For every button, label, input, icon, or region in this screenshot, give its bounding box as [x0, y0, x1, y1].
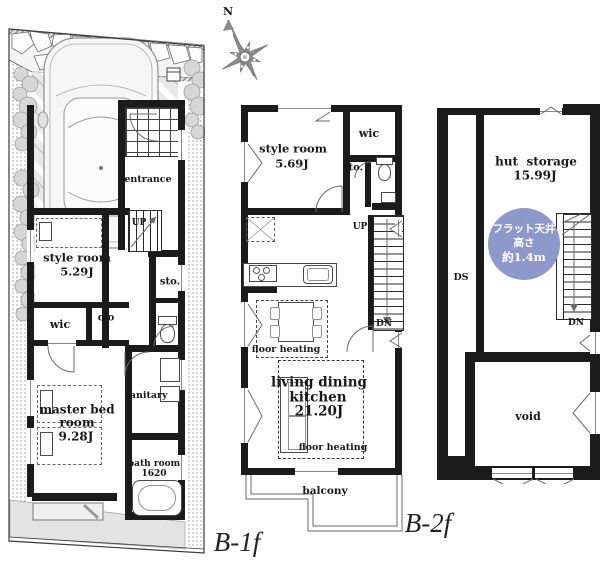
badge-line: 約1.4m [502, 250, 546, 265]
wall [437, 108, 448, 473]
sanitary-label: sanitary [124, 391, 167, 401]
room-area: 15.99J [513, 169, 556, 182]
compass-icon [208, 2, 282, 88]
window [27, 380, 34, 416]
window [590, 392, 600, 434]
room-name: hut storage [495, 155, 577, 168]
dn-label: DN [376, 320, 392, 330]
floor-label-b1f: B-1f [214, 528, 261, 558]
plan-b2f: style room 5.69J wic sto. UP DN floor he… [233, 95, 413, 545]
room-name: living dining [271, 376, 367, 391]
room-area: 5.69J [275, 158, 308, 171]
room-size: 1620 [141, 470, 166, 480]
wall [32, 340, 129, 346]
closet-label: clo [98, 313, 115, 324]
wall [248, 208, 350, 215]
window [395, 332, 402, 348]
wall [149, 250, 156, 345]
floorplan-sheet: N [0, 0, 610, 568]
wall [32, 302, 129, 308]
wall [365, 162, 371, 207]
ds-label: DS [453, 273, 468, 283]
balcony-rail [246, 475, 402, 531]
window [241, 388, 248, 443]
bucket-icon [167, 68, 180, 81]
storage-label: sto. [160, 277, 180, 288]
burner [253, 267, 260, 274]
room-area: 21.20J [295, 405, 344, 420]
plan-loft: フラット天井 高さ 約1.4m hut storage 15.99J DS DN… [437, 104, 600, 484]
wall [125, 433, 185, 440]
burner [258, 274, 265, 281]
room-area: 9.28J [59, 430, 94, 443]
window [295, 468, 338, 475]
wall [125, 345, 185, 352]
entrance-label: entrance [124, 175, 171, 185]
wall [27, 208, 130, 215]
window [27, 230, 34, 262]
stair-handrail [556, 213, 564, 320]
wall [448, 456, 475, 466]
window [492, 468, 532, 478]
chair [312, 325, 322, 338]
window [241, 142, 248, 182]
wall [156, 298, 183, 303]
chair [270, 307, 280, 320]
room-name: style room [259, 143, 327, 156]
window [241, 302, 248, 347]
wall [465, 352, 590, 362]
storage-label: sto. [343, 163, 363, 174]
planting-strip-right [186, 98, 204, 548]
chair [312, 307, 322, 320]
pillow [39, 222, 52, 241]
room-area: 5.29J [60, 266, 93, 279]
window [535, 468, 573, 478]
room-name: style room [43, 252, 111, 265]
wall [372, 203, 402, 210]
plan-b1f: entrance UP style room 5.29J sto. wic cl… [8, 28, 205, 558]
stairs-up-1f [128, 210, 162, 252]
bathtub-icon [138, 485, 176, 511]
window [395, 220, 402, 237]
refrigerator-space [246, 217, 275, 242]
room-name: room [59, 416, 94, 429]
badge-line: 高さ [514, 237, 535, 251]
ceiling-height-badge: フラット天井 高さ 約1.4m [488, 208, 560, 280]
wall [118, 107, 125, 162]
void-label: void [515, 411, 541, 423]
pillow [40, 432, 53, 456]
window [590, 332, 600, 354]
chair [270, 325, 280, 338]
washer-icon [160, 358, 180, 382]
window [178, 130, 185, 160]
entrance-porch-tiles [125, 107, 180, 157]
floor-label-b2f: B-2f [405, 509, 452, 539]
floor-heating-label: floor heating [299, 443, 368, 453]
up-label: UP [132, 219, 147, 229]
toilet-icon [378, 164, 391, 181]
wall [102, 208, 109, 348]
wall [476, 115, 484, 362]
compass-star [210, 22, 280, 88]
window [540, 108, 562, 115]
burner [263, 267, 270, 274]
floor-heating-label: floor heating [252, 345, 321, 355]
wall [465, 362, 475, 459]
sink-icon [307, 268, 329, 281]
badge-line: フラット天井 [493, 223, 556, 237]
dining-table [278, 302, 314, 342]
wall [32, 493, 117, 501]
up-label: UP [353, 223, 368, 233]
wic-label: wic [359, 128, 379, 140]
window [278, 105, 331, 112]
door-opening [48, 340, 76, 346]
wall [118, 100, 185, 107]
wic-label: wic [50, 319, 70, 331]
hand-sink-icon [381, 192, 396, 203]
window [27, 428, 34, 464]
dn-label: DN [568, 319, 584, 329]
toilet-icon [160, 324, 175, 343]
balcony-label: balcony [302, 486, 347, 498]
